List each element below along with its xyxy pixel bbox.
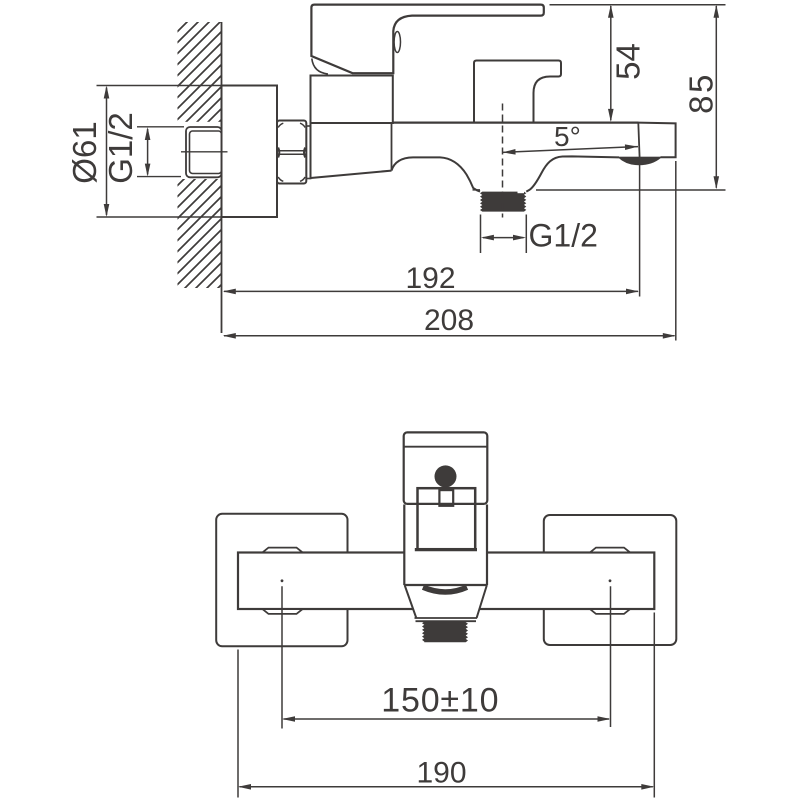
svg-text:192: 192 — [405, 262, 455, 295]
svg-text:150±10: 150±10 — [381, 682, 499, 720]
svg-text:85: 85 — [683, 72, 720, 114]
svg-text:G1/2: G1/2 — [529, 218, 598, 254]
svg-text:G1/2: G1/2 — [102, 112, 139, 184]
svg-text:54: 54 — [610, 43, 647, 80]
svg-text:208: 208 — [424, 304, 474, 337]
svg-text:Ø61: Ø61 — [66, 121, 103, 183]
svg-text:5°: 5° — [554, 121, 581, 152]
svg-text:190: 190 — [416, 757, 466, 790]
